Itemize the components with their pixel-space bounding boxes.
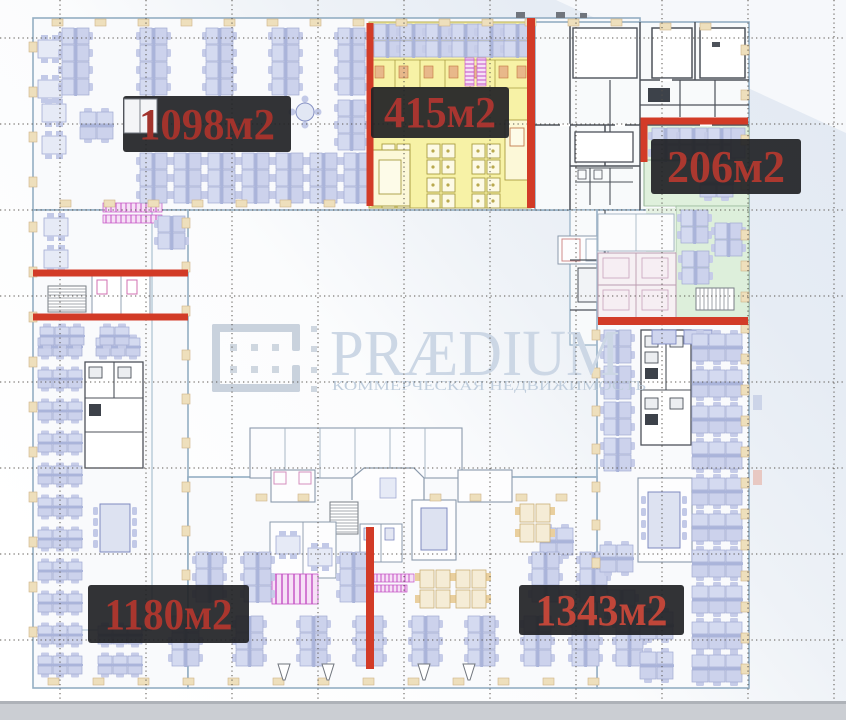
svg-text:415м2: 415м2 <box>384 88 496 137</box>
svg-text:1180м2: 1180м2 <box>105 590 233 639</box>
svg-text:КОММЕРЧЕСКАЯ НЕДВИЖИМОСТЬ: КОММЕРЧЕСКАЯ НЕДВИЖИМОСТЬ <box>332 378 646 393</box>
svg-text:1343м2: 1343м2 <box>536 586 668 635</box>
svg-text:1098м2: 1098м2 <box>139 100 275 149</box>
svg-text:206м2: 206м2 <box>667 141 785 192</box>
